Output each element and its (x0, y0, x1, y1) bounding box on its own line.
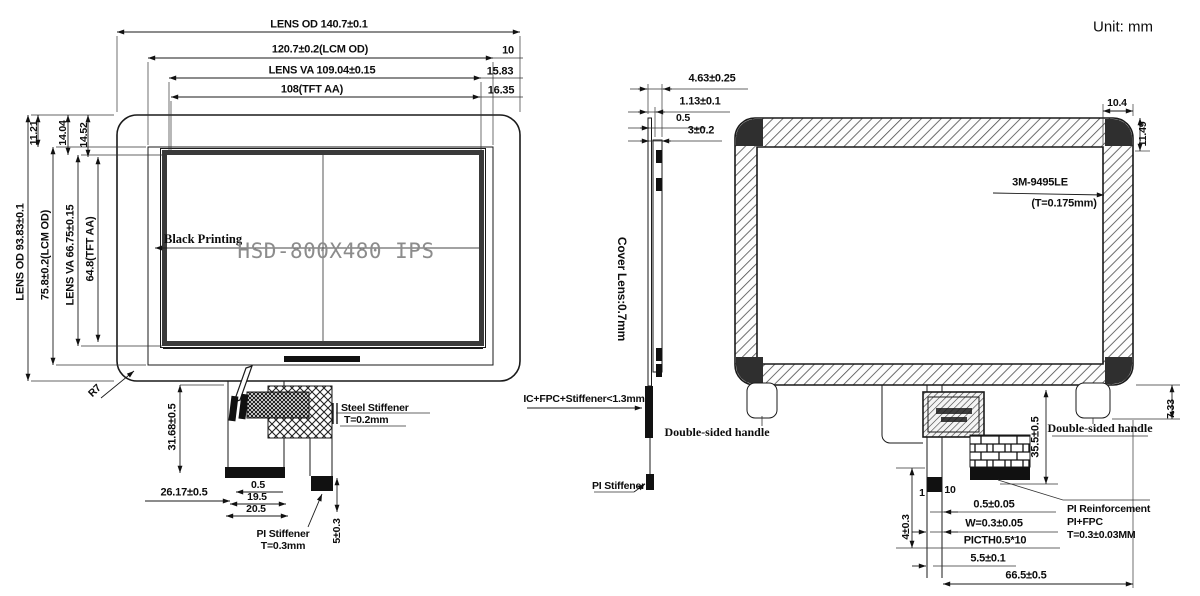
dim-26-17: 26.17±0.5 (160, 488, 207, 499)
dim-1: 1 (919, 488, 925, 499)
dim-offset-15-83: 15.83 (487, 67, 514, 78)
adhesive-model-label: 3M-9495LE (1012, 178, 1068, 189)
dim-10-pins: 10 (944, 485, 955, 496)
dim-w-0-3: W=0.3±0.05 (965, 519, 1023, 530)
dim-31-68: 31.68±0.5 (168, 403, 179, 450)
dim-3-plus-minus: 3±0.2 (688, 126, 714, 137)
back-view-lines (735, 104, 1180, 588)
dim-4-63: 4.63±0.25 (688, 74, 735, 85)
handle-left-label: Double-sided handle (664, 426, 769, 438)
pi-stiffener-label: PI Stiffener (256, 529, 309, 540)
dim-tft-aa-height: 64.8(TFT AA) (86, 216, 97, 281)
dim-7-33: 7.33 (1166, 399, 1177, 419)
dim-20-5: 20.5 (246, 504, 266, 515)
front-view-lines (28, 32, 523, 527)
dim-19-5: 19.5 (247, 492, 267, 503)
dim-5-plus-minus: 5±0.3 (332, 518, 343, 543)
dim-pitch: PICTH0.5*10 (964, 536, 1027, 547)
pi-fpc-label: PI+FPC (1067, 517, 1103, 528)
lcd-module-technical-drawing: LENS OD 140.7±0.1 120.7±0.2(LCM OD) 10 L… (0, 0, 1200, 596)
dim-offset-16-35: 16.35 (488, 86, 515, 97)
dim-offset-14-52: 14.52 (79, 122, 90, 147)
dim-lcm-od-width: 120.7±0.2(LCM OD) (272, 45, 368, 56)
dim-0-5-0-05: 0.5±0.05 (973, 500, 1014, 511)
pi-reinforcement-label: PI Reinforcement (1067, 504, 1150, 515)
dim-lens-va-height: LENS VA 66.75±0.15 (66, 205, 77, 306)
dim-offset-14-04: 14.04 (58, 120, 69, 145)
dim-0-5-side: 0.5 (676, 113, 690, 124)
pi-fpc-thickness-label: T=0.3±0.03MM (1067, 530, 1135, 541)
dim-lens-va-width: LENS VA 109.04±0.15 (269, 66, 376, 77)
black-printing-label: Black Printing (164, 233, 242, 246)
adhesive-thickness-label: (T=0.175mm) (1031, 199, 1096, 210)
handle-right-label: Double-sided handle (1047, 422, 1152, 434)
dim-66-5: 66.5±0.5 (1005, 571, 1046, 582)
fpc-stack-label: IC+FPC+Stiffener<1.3mm (523, 394, 644, 405)
drawing-linework (0, 0, 1200, 596)
dim-10-4: 10.4 (1107, 98, 1127, 109)
dim-35-5: 35.5±0.5 (1031, 416, 1042, 457)
steel-stiffener-label: Steel Stiffener (341, 403, 409, 414)
dim-offset-11-21: 11.21 (29, 121, 40, 146)
dim-4-plus-minus: 4±0.3 (901, 514, 912, 539)
dim-lens-od-height: LENS OD 93.83±0.1 (16, 203, 27, 300)
pi-stiffener-thickness: T=0.3mm (261, 541, 305, 552)
model-watermark: HSD-800X480 IPS (237, 239, 434, 263)
dim-right-offset-10: 10 (502, 46, 514, 57)
cover-lens-label: Cover Lens:0.7mm (616, 237, 628, 341)
dim-1-13: 1.13±0.1 (679, 97, 720, 108)
dim-0-5: 0.5 (251, 480, 265, 491)
dim-11-49: 11.49 (1138, 122, 1149, 147)
dim-lens-od-width: LENS OD 140.7±0.1 (270, 20, 367, 31)
dim-tft-aa-width: 108(TFT AA) (281, 85, 343, 96)
steel-stiffener-thickness: T=0.2mm (344, 415, 388, 426)
dim-5-5: 5.5±0.1 (970, 554, 1005, 565)
pi-stiffener-side-label: PI Stiffener (592, 481, 645, 492)
dim-lcm-od-height: 75.8±0.2(LCM OD) (41, 210, 52, 300)
unit-label: Unit: mm (1093, 19, 1153, 36)
